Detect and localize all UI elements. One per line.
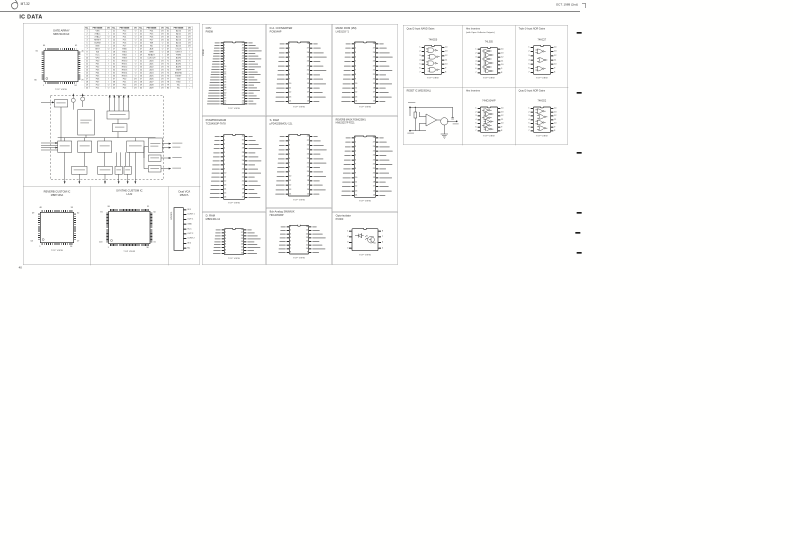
pin-number: 15: [224, 192, 226, 194]
pin-number: 4: [525, 118, 529, 120]
pin-number: 32: [239, 135, 244, 137]
pin-stub: [221, 189, 223, 190]
pin-number: 9: [501, 126, 502, 128]
pin-number: 6: [382, 241, 383, 243]
top-view-caption: TOP VIEW: [266, 106, 331, 108]
pin-stub: [310, 74, 312, 75]
pin-stub: [286, 70, 288, 71]
pin-number: 3: [289, 52, 290, 54]
pin-number: 14: [224, 188, 226, 190]
pin-name-smudge: [208, 98, 220, 99]
pin-number: 2: [472, 52, 476, 54]
pin-stub: [309, 248, 311, 249]
pin-number: 14: [303, 233, 308, 235]
pin-stub: [221, 173, 223, 174]
pin-name-smudge: [312, 230, 319, 231]
pin-number: 13: [355, 96, 357, 98]
pin-name-smudge: [212, 164, 219, 165]
pin-number: 6: [355, 65, 356, 67]
ic-package-body: [44, 50, 79, 82]
pin-number: 8: [554, 130, 555, 132]
pin-name-smudge: [215, 238, 221, 239]
pin-stub: [184, 248, 187, 249]
pin-name-smudge: [379, 168, 386, 169]
pin-name-smudge: [312, 252, 319, 253]
pin-stub: [222, 241, 224, 242]
pin-name-smudge: [379, 57, 392, 58]
pin-name-smudge: [248, 50, 261, 51]
pin-name-smudge: [209, 85, 219, 86]
pin-number: 4: [472, 118, 476, 120]
pin-number: 18: [370, 181, 375, 183]
pin-stub: [421, 68, 423, 69]
pin-name-smudge: [211, 74, 220, 75]
pin-name-smudge: [313, 88, 319, 89]
pin-name-smudge: [212, 66, 220, 67]
pin-name-smudge: [343, 74, 350, 75]
pin-stub: [310, 158, 312, 159]
pin-name-smudge: [248, 79, 257, 80]
pin-number: 8: [501, 130, 502, 132]
pin-number: 31: [239, 139, 244, 141]
pin-number: 26: [370, 52, 375, 54]
pin-stub: [221, 42, 223, 43]
pin-name-smudge: [213, 58, 220, 59]
pin-stub: [221, 90, 223, 91]
panel-part: TC534000P-TA78: [206, 122, 226, 125]
pin-name-smudge: [248, 98, 259, 99]
pin-stub: [221, 45, 223, 46]
panel-dram: D. RAM MB81464-12 1182173164155146137128…: [202, 212, 266, 265]
pin-stub: [551, 68, 553, 69]
pin-number: 3: [289, 144, 290, 146]
block-diagram: [38, 90, 189, 187]
pin-name-smudge: [276, 185, 285, 186]
top-view-caption: TOP VIEW: [202, 107, 265, 109]
ic-package-body: [174, 207, 184, 250]
corner-pin-number: 1: [39, 246, 40, 248]
pin-name-smudge: [279, 48, 284, 49]
page-number: 40: [19, 266, 22, 269]
pin-stub: [222, 232, 224, 233]
inv-gate-symbols: [481, 108, 496, 131]
panel-cpu: CPU P8098 148247346445544643742841940103…: [202, 24, 266, 116]
pin-number: 10: [289, 83, 291, 85]
pin-name-smudge: [343, 83, 351, 84]
pin-stub: [376, 191, 378, 192]
pin-name-smudge: [379, 182, 385, 183]
pin-stub: [376, 195, 378, 196]
pin-stub: [477, 112, 479, 113]
pin-stub: [244, 247, 246, 248]
header-rule: [0, 11, 580, 12]
pin-number: 24: [370, 60, 375, 62]
pin-stub: [352, 48, 354, 49]
pin-number: 30: [239, 143, 244, 145]
pin-number: 23: [239, 172, 244, 174]
pin-stub: [221, 164, 223, 165]
pin-number: 13: [355, 190, 357, 192]
pin-stub: [530, 127, 532, 128]
pin-fringe-top: [110, 209, 149, 211]
pin-number: 10: [224, 172, 226, 174]
pin-number: 14: [445, 46, 447, 48]
pin-number: 5: [355, 60, 356, 62]
pin-label: IN 2: [187, 242, 191, 244]
pin-number: 10: [238, 252, 243, 254]
pin-number: 6: [289, 65, 290, 67]
top-view-caption: TOP VIEW: [266, 199, 331, 201]
pin-stub: [245, 48, 247, 49]
pin-number: 4: [289, 149, 290, 151]
pin-number: 8: [355, 74, 356, 76]
pin-number: 9: [554, 67, 555, 69]
pin-stub: [245, 77, 247, 78]
pin-number: 26: [370, 146, 375, 148]
pin-name-smudge: [248, 45, 255, 46]
pin-number: 12: [445, 55, 447, 57]
corner-pin-number: 50: [153, 211, 155, 213]
pin-number: 27: [370, 141, 375, 143]
pin-stub: [530, 112, 532, 113]
pin-fringe-left: [106, 213, 108, 243]
panel-analog-sw: 8ch Analog SW/MUX HD14051BP 116215314413…: [266, 208, 332, 265]
pin-number: 3: [224, 143, 225, 145]
pin-stub: [310, 70, 312, 71]
pin-name-smudge: [379, 66, 389, 67]
pin-number: 21: [370, 74, 375, 76]
pin-number: 9: [501, 68, 502, 70]
pin-name-smudge: [211, 177, 219, 178]
pin-name-smudge: [313, 149, 326, 150]
pin-name-smudge: [313, 171, 323, 172]
pin-stub: [551, 47, 553, 48]
pin-stub: [286, 79, 288, 80]
nand-panel-title: Quad 2-Input NAND Gates: [407, 28, 460, 31]
pin-stub: [245, 50, 247, 51]
pin-name-smudge: [277, 176, 285, 177]
pin-stub: [287, 245, 289, 246]
pin-stub: [310, 149, 312, 150]
pin-name-smudge: [212, 61, 219, 62]
pin-stub: [477, 123, 479, 124]
pin-stub: [287, 241, 289, 242]
synth-ic-part: LA32: [90, 193, 168, 196]
pin-number: 13: [501, 52, 503, 54]
pin-name-smudge: [248, 95, 256, 96]
pin-stub: [310, 180, 312, 181]
pin-number: 7: [472, 72, 476, 74]
pin-name-smudge: [313, 185, 322, 186]
pin-number: 15: [304, 193, 309, 195]
pin-stub: [222, 235, 224, 236]
top-view-caption: TOP VIEW: [515, 77, 568, 79]
header-date: OCT. 1989 (2nd): [487, 3, 578, 6]
gate-array-part: MB674163/GF: [33, 33, 90, 36]
pin-number: 22: [370, 163, 375, 165]
pin-stub: [376, 43, 378, 44]
pin-name-smudge: [248, 181, 257, 182]
pin-name-smudge: [313, 66, 323, 67]
pin-name-smudge: [313, 158, 323, 159]
pin-number: 4: [472, 60, 476, 62]
panel-part: P8098: [206, 30, 213, 33]
pin-name-smudge: [379, 164, 392, 165]
pin-fringe-left: [42, 52, 44, 81]
pin-name-smudge: [343, 173, 351, 174]
panel-title-block: CPU P8098: [206, 27, 213, 33]
pin-number: 4: [345, 247, 348, 249]
pin-stub: [551, 112, 553, 113]
pin-stub: [286, 66, 288, 67]
pin-name-smudge: [208, 93, 219, 94]
pin-stub: [221, 79, 223, 80]
pin-number: 9: [303, 251, 308, 253]
pin-stub: [530, 123, 532, 124]
pin-name-smudge: [277, 74, 284, 75]
pin-number: 10: [303, 248, 308, 250]
pin-stub: [245, 101, 247, 102]
panel-dac: D.A. CONVERTER PCM54HP 12822732642552462…: [266, 24, 332, 116]
main-ic-box: GATE ARRAY MB674163/GF 644140252418065TO…: [23, 23, 200, 265]
pin-name-smudge: [276, 189, 285, 190]
pin-name-smudge: [214, 148, 220, 149]
pin-number: 16: [304, 96, 309, 98]
pin-number: 23: [304, 158, 309, 160]
pin-name-smudge: [214, 50, 220, 51]
panel-mask-rom: MASK ROM (2M) LH53103 *1 128227326425524…: [332, 24, 398, 116]
pin-stub: [376, 177, 378, 178]
pin-fringe-right: [74, 214, 76, 242]
pin-name-smudge: [379, 195, 385, 196]
pin-name-smudge: [313, 176, 326, 177]
pin-number: 12: [355, 91, 357, 93]
pin-name-smudge: [248, 101, 253, 102]
ic-package-body: [108, 211, 150, 244]
pin-stub: [376, 61, 378, 62]
top-view-caption: TOP VIEW: [27, 249, 87, 251]
pin-stub: [551, 108, 553, 109]
pin-name-smudge: [213, 250, 220, 251]
hex-inv-oc-part: 74LS05: [462, 41, 515, 44]
pin-number: 17: [370, 91, 375, 93]
pin-stub: [551, 115, 553, 116]
pin-number: 10: [445, 63, 447, 65]
pin-name-smudge: [248, 136, 252, 137]
pin-stub: [245, 95, 247, 96]
pin-stub: [286, 163, 288, 164]
pin-stub: [286, 154, 288, 155]
pin-number: 20: [304, 171, 309, 173]
pin-stub: [421, 51, 423, 52]
pin-name-smudge: [248, 56, 258, 57]
pin-stub: [498, 53, 500, 54]
vca-sip-drawing: M5207LIN 1CONT 1OUT 1GNDVCCOUT 2CONT 2IN…: [170, 203, 199, 262]
scan-mark-1: [577, 32, 582, 34]
pin-stub: [286, 57, 288, 58]
pin-stub: [221, 101, 223, 102]
pin-label: OUT 2: [187, 233, 193, 235]
pin-name-smudge: [248, 152, 255, 153]
pin-stub: [551, 59, 553, 60]
pin-stub: [442, 59, 444, 60]
pin-stub: [287, 252, 289, 253]
pin-name-smudge: [280, 136, 285, 137]
pin-number: 8: [355, 168, 356, 170]
pin-stub: [376, 173, 378, 174]
pin-name-smudge: [346, 43, 351, 44]
pin-name-smudge: [280, 43, 285, 44]
pin-name-smudge: [276, 92, 285, 93]
pin-name-smudge: [313, 92, 322, 93]
pin-name-smudge: [277, 167, 284, 168]
pin-name-smudge: [213, 152, 219, 153]
pin-number: 22: [304, 162, 309, 164]
pin-name-smudge: [279, 245, 286, 246]
pin-number: 2: [525, 50, 529, 52]
pin-number: 12: [554, 55, 556, 57]
pin-number: 8: [290, 251, 291, 253]
pin-name-smudge: [215, 136, 220, 137]
pin-name-smudge: [214, 244, 221, 245]
nor2-part: 74HC02: [515, 100, 568, 103]
pin-stub: [530, 51, 532, 52]
pin-name-smudge: [313, 97, 325, 98]
panel-part: LH53103 *1: [336, 30, 357, 33]
pin-name-smudge: [379, 160, 389, 161]
pin-name-smudge: [313, 145, 323, 146]
corner-pin-number: 64: [43, 45, 45, 47]
pin-stub: [376, 74, 378, 75]
pin-number: 22: [239, 176, 244, 178]
pin-number: 2: [525, 111, 529, 113]
pin-stub: [222, 238, 224, 239]
corner-pin-number: 80: [108, 206, 110, 208]
pin-stub: [245, 42, 247, 43]
corner-pin-number: 32: [77, 212, 79, 214]
pin-name-smudge: [313, 136, 317, 137]
nor-gate-symbols: [534, 47, 549, 73]
corner-pin-number: 24: [74, 85, 76, 87]
panel-title-block: REVERB MASK ROM(256K) HN623257P PZ21: [336, 119, 397, 125]
pin-name-smudge: [379, 70, 392, 71]
pin-name-smudge: [247, 244, 257, 245]
pin-name-smudge: [248, 64, 258, 65]
pin-name-smudge: [215, 42, 220, 43]
inv-gate-symbols: [481, 49, 496, 73]
pin-stub: [530, 55, 532, 56]
pin-number: 9: [289, 78, 290, 80]
pin-stub: [498, 127, 500, 128]
panel-part: HD14051BP: [270, 214, 295, 217]
pin-stub: [310, 97, 312, 98]
pin-number: 2: [416, 50, 420, 52]
pin-name-smudge: [276, 97, 285, 98]
diagram-arrowheads: [52, 94, 171, 184]
pin-stub: [221, 144, 223, 145]
pin-number: 3: [472, 56, 476, 58]
pin-name-smudge: [343, 168, 350, 169]
pin-name-smudge: [248, 185, 260, 186]
pin-stub: [287, 248, 289, 249]
corner-pin-number: 40: [81, 50, 83, 52]
pin-stub: [352, 146, 354, 147]
pin-stub: [376, 186, 378, 187]
pin-stub: [498, 130, 500, 131]
pin-stub: [221, 193, 223, 194]
pin-number: 8: [289, 166, 290, 168]
pin-number: 6: [224, 156, 225, 158]
pin-name-smudge: [345, 142, 350, 143]
pin-stub: [221, 98, 223, 99]
pin-number: 10: [501, 64, 503, 66]
pin-number: 6: [525, 126, 529, 128]
pin-stub: [244, 232, 246, 233]
pin-number: 1: [289, 43, 290, 45]
pin-name-smudge: [345, 151, 351, 152]
pin-stub: [286, 136, 288, 137]
pin-fringe-bottom: [110, 244, 149, 246]
pin-number: 13: [289, 189, 291, 191]
pin-name-smudge: [379, 92, 388, 93]
pin-stub: [551, 119, 553, 120]
pin-name-smudge: [214, 140, 219, 141]
pin-name-smudge: [214, 48, 220, 49]
pin-fringe-top: [42, 210, 73, 212]
pin-name-smudge: [344, 70, 351, 71]
pin-name-smudge: [379, 97, 391, 98]
ic-package-body: [40, 212, 74, 243]
pin-name-smudge: [344, 61, 350, 62]
pin-name-smudge: [210, 82, 220, 83]
pin-name-smudge: [281, 226, 286, 227]
pin-number: 13: [289, 96, 291, 98]
pin-stub: [530, 68, 532, 69]
opto-internal-schematic: [353, 230, 377, 250]
logic-ic-box: Quad 2-Input NAND Gates 74HC00 114213312…: [403, 25, 568, 145]
corner-pin-number: 1: [43, 85, 44, 87]
pin-name-smudge: [248, 72, 257, 73]
pin-stub: [221, 93, 223, 94]
pin-number: 26: [304, 52, 309, 54]
gate-array-title-block: GATE ARRAY MB674163/GF: [33, 29, 90, 35]
diagram-label-smudges: [56, 102, 182, 170]
cpu-dip-drawing: 1482473464455446437428419401039113812371…: [202, 40, 265, 115]
pin-number: 25: [370, 150, 375, 152]
pin-stub: [498, 108, 500, 109]
pin-stub: [245, 64, 247, 65]
pin-name-smudge: [207, 103, 220, 104]
pin-name-smudge: [379, 186, 388, 187]
pin-name-smudge: [313, 57, 326, 58]
pin-number: 24: [304, 60, 309, 62]
pin-number: 11: [554, 59, 556, 61]
pin-stub: [245, 160, 247, 161]
pin-name-smudge: [213, 56, 220, 57]
pin-name-smudge: [277, 83, 285, 84]
pin-stub: [221, 103, 223, 104]
pin-stub: [376, 168, 378, 169]
pin-stub: [309, 237, 311, 238]
corner-pin-number: 80: [34, 79, 36, 81]
pin-name-smudge: [344, 160, 351, 161]
pin-name-smudge: [210, 189, 219, 190]
panel-part: PCM54HP: [270, 30, 293, 33]
reverb-ic-qfp64-drawing: 483332171616449TOP VIEW: [27, 203, 87, 262]
pin-stub: [184, 214, 187, 215]
pin-stub: [222, 247, 224, 248]
pin-stub: [245, 72, 247, 73]
